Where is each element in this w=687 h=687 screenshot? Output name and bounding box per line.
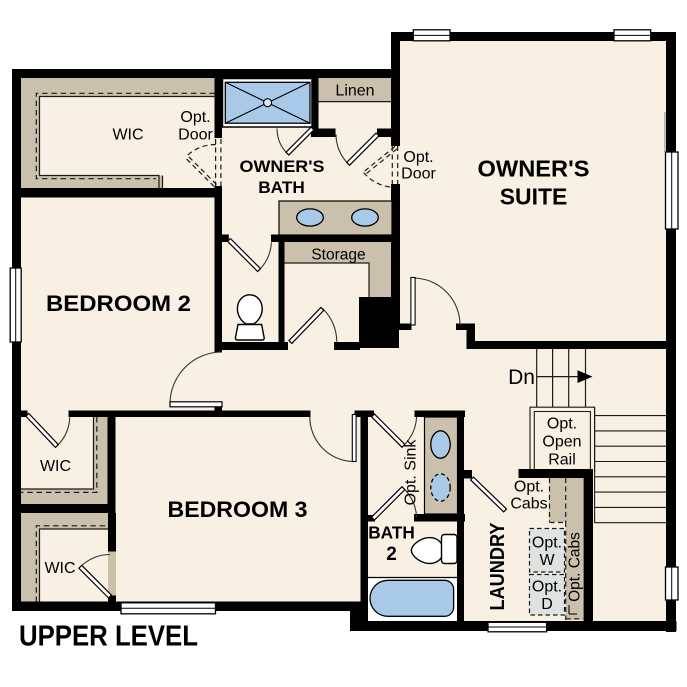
svg-text:WIC: WIC <box>40 458 71 475</box>
svg-text:BEDROOM 3: BEDROOM 3 <box>168 497 308 522</box>
svg-text:OWNER'S: OWNER'S <box>240 157 325 176</box>
svg-text:BATH: BATH <box>368 523 415 543</box>
svg-text:Door: Door <box>178 126 213 143</box>
svg-text:Opt.: Opt. <box>547 416 577 433</box>
svg-text:Linen: Linen <box>335 83 374 100</box>
svg-text:Dn: Dn <box>508 366 535 389</box>
svg-text:SUITE: SUITE <box>500 184 568 210</box>
svg-text:Opt.: Opt. <box>532 535 562 552</box>
svg-text:Opt.: Opt. <box>180 109 210 126</box>
svg-text:2: 2 <box>386 544 397 565</box>
svg-text:BATH: BATH <box>258 178 305 197</box>
svg-text:WIC: WIC <box>112 126 143 143</box>
svg-text:Open: Open <box>542 434 581 451</box>
svg-text:Opt.: Opt. <box>403 149 433 166</box>
svg-text:Rail: Rail <box>548 452 576 469</box>
svg-text:OWNER'S: OWNER'S <box>478 156 590 182</box>
svg-text:Cabs: Cabs <box>510 496 547 513</box>
svg-text:Opt. Sink: Opt. Sink <box>403 439 420 506</box>
svg-text:UPPER LEVEL: UPPER LEVEL <box>19 621 198 653</box>
svg-text:Storage: Storage <box>311 247 365 264</box>
svg-text:LAUNDRY: LAUNDRY <box>487 522 509 611</box>
svg-text:Opt.: Opt. <box>514 479 544 496</box>
svg-text:Opt. Cabs: Opt. Cabs <box>567 532 584 602</box>
svg-text:Opt.: Opt. <box>532 579 562 596</box>
svg-text:BEDROOM 2: BEDROOM 2 <box>46 291 191 316</box>
svg-text:W: W <box>539 552 555 569</box>
svg-text:WIC: WIC <box>44 560 75 577</box>
svg-text:Door: Door <box>401 166 436 183</box>
svg-text:D: D <box>541 596 553 613</box>
